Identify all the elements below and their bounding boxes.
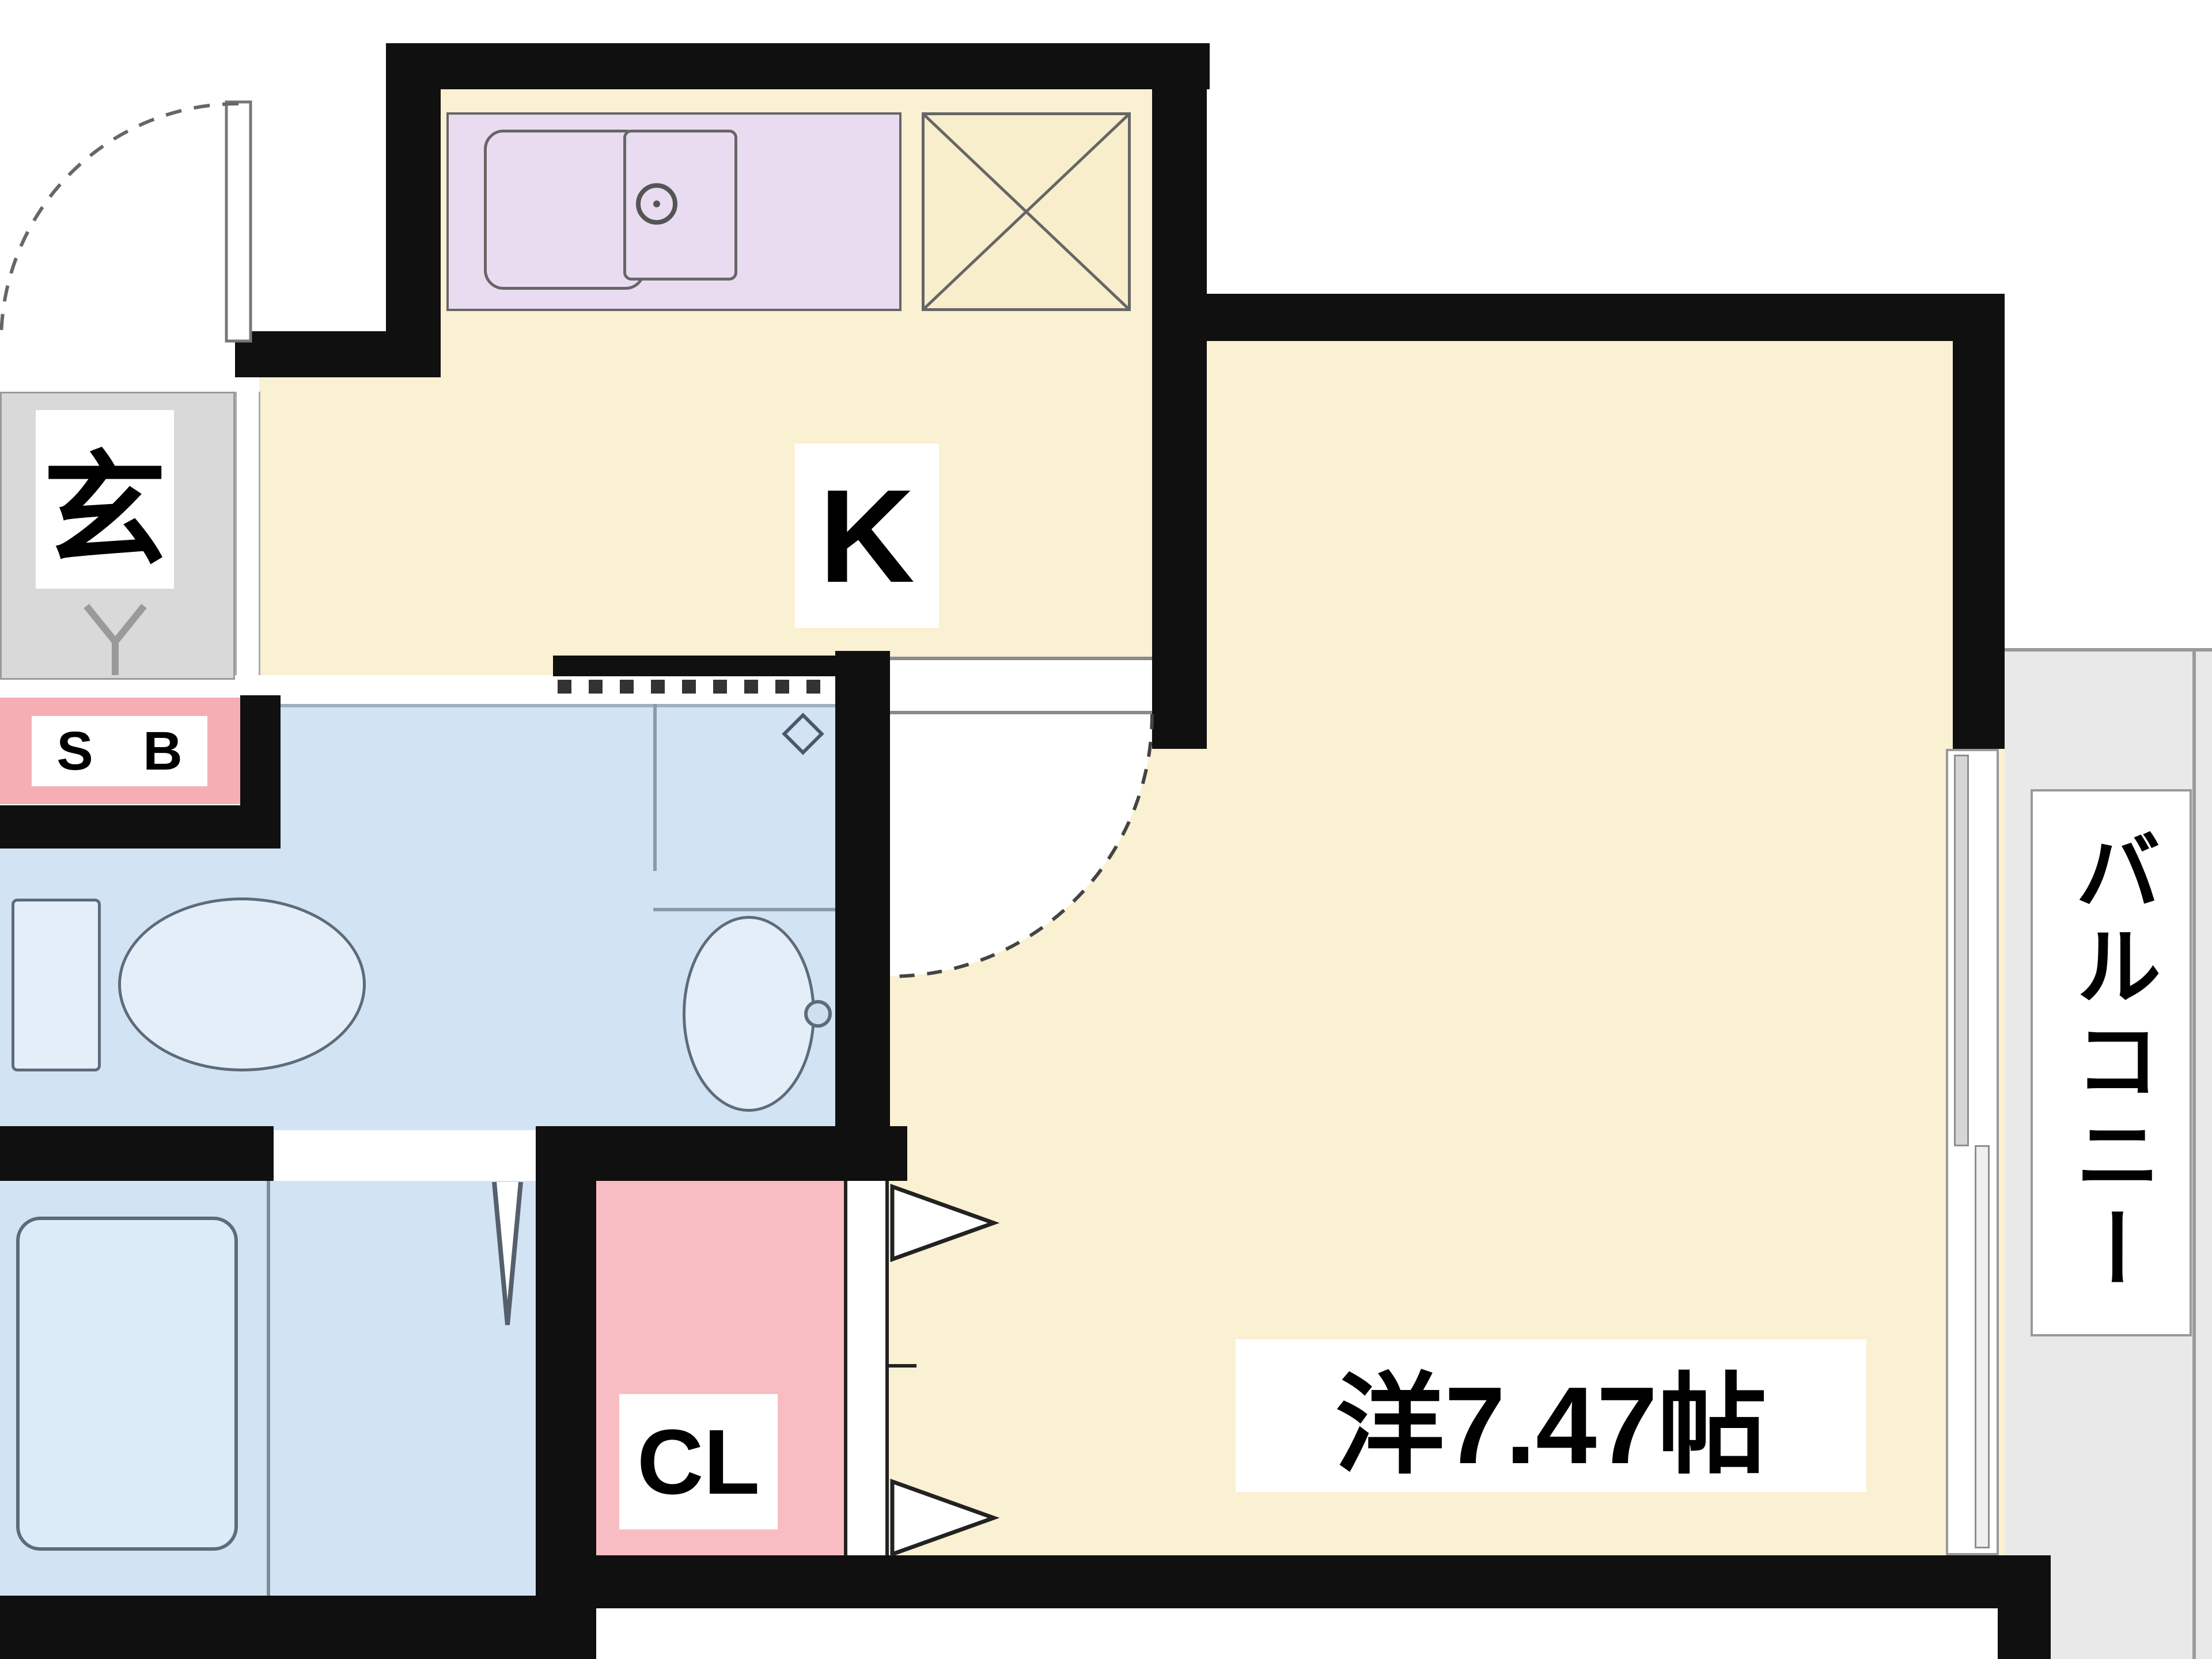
- entry-arrow-icon: [86, 606, 144, 642]
- bath-door-icon: [494, 1182, 521, 1325]
- door-arcs-overlay: [0, 0, 2212, 1659]
- room-door-swing-area: [890, 714, 1152, 976]
- shoe-box-label: S B: [32, 716, 207, 786]
- entrance-label: 玄: [36, 410, 174, 589]
- floor-plan: K 洋7.47帖 CL 玄 S B バルコニー: [0, 0, 2212, 1659]
- kitchen-label: K: [795, 444, 939, 628]
- closet-door-arrow-icon: [892, 1482, 994, 1554]
- closet-door-arrow-icon: [892, 1187, 994, 1259]
- balcony-label: バルコニー: [2031, 789, 2192, 1336]
- entrance-door-leaf: [226, 102, 251, 341]
- entrance-door-arc-icon: [1, 104, 238, 341]
- closet-label: CL: [619, 1394, 778, 1529]
- western-room-label: 洋7.47帖: [1236, 1339, 1866, 1492]
